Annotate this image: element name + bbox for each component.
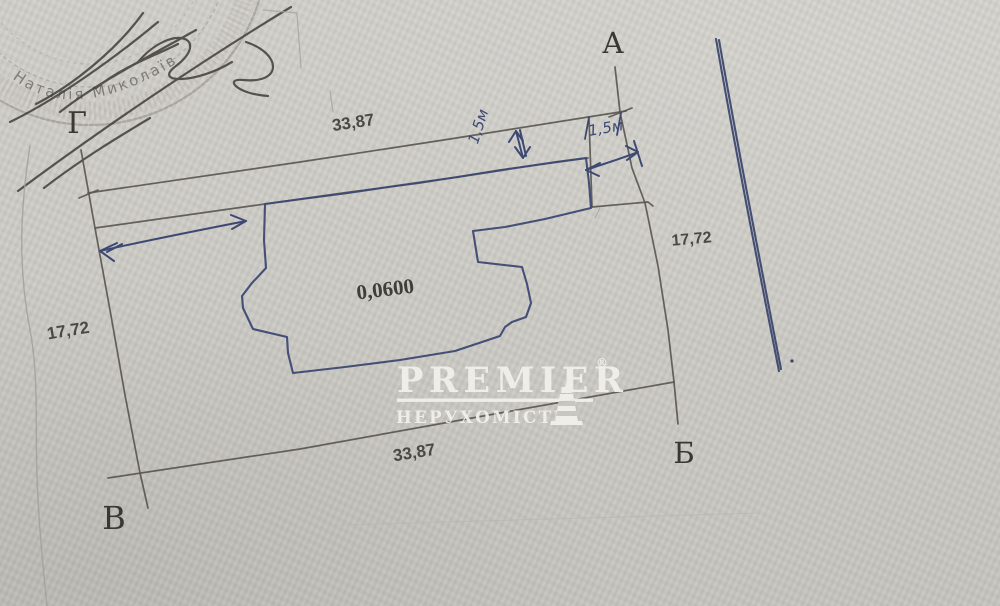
area-label: 0,0600 — [355, 274, 415, 305]
dimension-label-right: 17,72 — [671, 229, 712, 249]
premier-watermark: PREMIER ® НЕРУХОМІСТЬ — [396, 356, 628, 427]
dimension-label-top: 33,87 — [331, 110, 376, 135]
setback-note-top: 1,5м — [464, 107, 492, 146]
notch-bottom — [592, 202, 653, 207]
arrow-left-offset — [100, 215, 246, 261]
faint-tick — [330, 91, 333, 112]
labels: Г А Б В 33,87 17,72 17,72 33,87 0,0600 — [46, 26, 713, 537]
survey-sketch-canvas: Наталія Миколаїв — [0, 0, 1000, 606]
boundary-line-left — [81, 150, 148, 508]
notary-stamp: Наталія Миколаїв — [0, 0, 291, 191]
building-outline — [242, 158, 591, 373]
svg-text:Наталія Миколаїв: Наталія Миколаїв — [10, 50, 181, 103]
watermark-brand: PREMIER — [397, 360, 628, 401]
notch-tick — [595, 208, 600, 218]
corner-label-b: Б — [673, 436, 694, 470]
scanned-page: Наталія Миколаїв — [0, 0, 1000, 606]
arrow-top-setback — [509, 130, 530, 158]
watermark-reg-mark: ® — [596, 356, 608, 370]
paper-edge-line — [22, 146, 47, 606]
crease-line — [340, 513, 760, 525]
corner-label-v: В — [102, 499, 126, 537]
dimension-label-bottom: 33,87 — [392, 440, 437, 465]
corner-label-g: Г — [67, 106, 87, 141]
signature-scribble — [10, 7, 291, 191]
stamp-ring-text: Наталія Миколаїв — [10, 50, 181, 103]
corner-label-a: А — [602, 26, 624, 60]
watermark-subtitle: НЕРУХОМІСТЬ — [396, 408, 570, 427]
setback-note-right: 1,5м — [587, 116, 625, 140]
stamp-inner-ring-2 — [0, 0, 206, 64]
dimension-label-left: 17,72 — [46, 318, 91, 343]
pen-dot — [790, 359, 793, 362]
faint-corner-line — [263, 10, 301, 68]
pen-annotations: 1,5м 1,5м — [100, 39, 794, 373]
pen-stroke-right — [716, 39, 781, 371]
